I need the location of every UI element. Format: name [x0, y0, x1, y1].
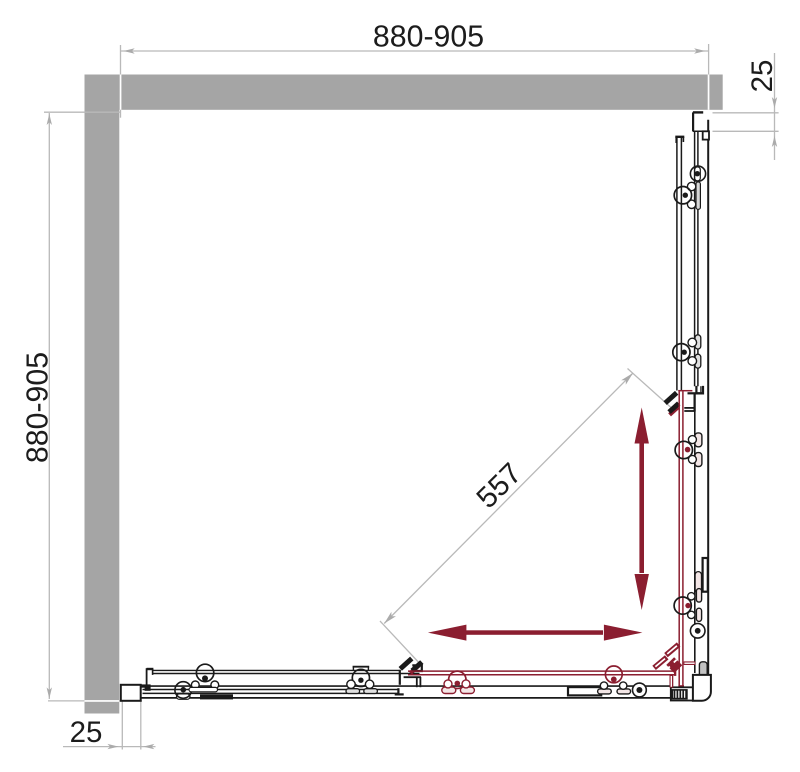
- svg-text:880-905: 880-905: [22, 352, 55, 463]
- svg-text:880-905: 880-905: [373, 21, 484, 54]
- svg-text:25: 25: [70, 716, 103, 749]
- svg-text:25: 25: [746, 60, 779, 93]
